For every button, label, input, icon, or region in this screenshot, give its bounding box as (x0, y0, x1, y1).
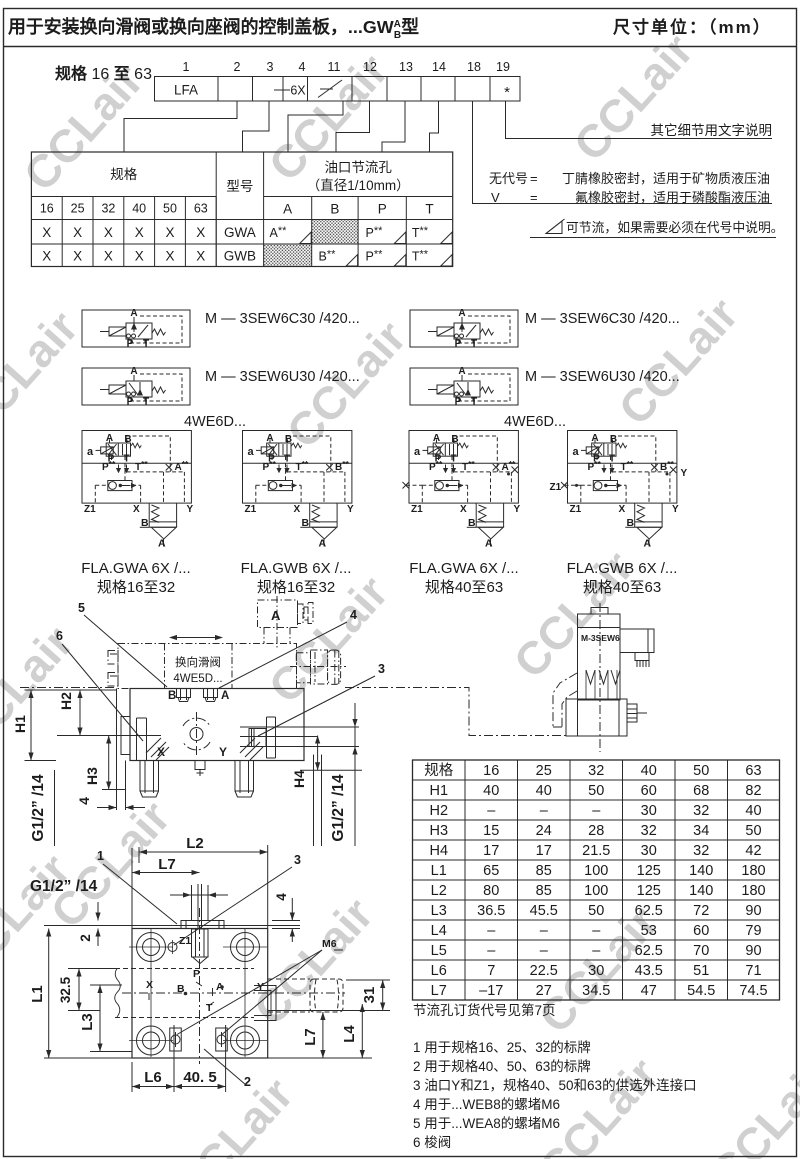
svg-text:规格16至32: 规格16至32 (257, 579, 335, 596)
svg-text:规格: 规格 (110, 167, 137, 182)
svg-text:6 梭阀: 6 梭阀 (413, 1135, 451, 1150)
svg-text:可节流，如果需要必须在代号中说明。: 可节流，如果需要必须在代号中说明。 (566, 220, 784, 235)
svg-text:M-3SEW6: M-3SEW6 (581, 633, 620, 643)
svg-text:A: A (458, 366, 465, 377)
svg-text:7: 7 (487, 963, 495, 979)
svg-text:CCLair: CCLair (0, 616, 83, 763)
svg-text:规格 16 至 63: 规格 16 至 63 (55, 64, 152, 83)
svg-text:FLA.GWB 6X /...: FLA.GWB 6X /... (567, 560, 678, 577)
svg-text:X: X (146, 979, 153, 991)
svg-text:T: T (471, 397, 477, 408)
svg-text:H2: H2 (58, 692, 74, 710)
svg-text:–17: –17 (479, 983, 503, 999)
svg-text:节流孔订货代号见第7页: 节流孔订货代号见第7页 (413, 1002, 556, 1018)
svg-text:X: X (294, 504, 301, 515)
svg-text:25: 25 (536, 763, 552, 779)
svg-text:100: 100 (584, 883, 608, 899)
svg-text:40. 5: 40. 5 (183, 1069, 216, 1086)
svg-text:4WE6D...: 4WE6D... (504, 414, 566, 430)
svg-text:32: 32 (101, 202, 115, 216)
svg-text:L3: L3 (431, 903, 447, 919)
svg-text:a: a (573, 446, 580, 458)
svg-text:G1/2” /14: G1/2” /14 (30, 878, 98, 895)
svg-text:H4: H4 (429, 843, 448, 859)
svg-text:4: 4 (274, 893, 289, 901)
svg-text:X: X (135, 225, 144, 240)
svg-text:A: A (458, 308, 465, 319)
svg-text:A: A (433, 433, 440, 444)
svg-text:71: 71 (745, 963, 761, 979)
svg-text:4WE5D...: 4WE5D... (173, 673, 222, 685)
svg-text:P**: P** (366, 249, 384, 264)
svg-text:140: 140 (689, 863, 713, 879)
svg-text:180: 180 (741, 863, 765, 879)
svg-text:无代号: 无代号 (489, 171, 528, 186)
svg-text:125: 125 (637, 863, 661, 879)
svg-text:A**: A** (270, 225, 288, 240)
svg-text:36.5: 36.5 (477, 903, 505, 919)
svg-text:17: 17 (536, 843, 552, 859)
svg-text:11: 11 (328, 60, 341, 74)
svg-text:G1/2” /14: G1/2” /14 (30, 774, 47, 842)
svg-text:X: X (165, 249, 174, 264)
svg-text:5: 5 (78, 601, 85, 615)
svg-text:B: B (451, 434, 458, 445)
svg-text:T: T (471, 339, 477, 350)
svg-text:H4: H4 (291, 770, 307, 788)
svg-text:–: – (540, 923, 549, 939)
svg-text:A: A (130, 308, 137, 319)
svg-text:72: 72 (693, 903, 709, 919)
svg-text:2: 2 (78, 934, 93, 942)
svg-text:B**: B** (335, 459, 350, 473)
svg-text:H2: H2 (429, 803, 448, 819)
svg-text:180: 180 (741, 883, 765, 899)
svg-text:4WE6D...: 4WE6D... (184, 414, 246, 430)
svg-text:H3: H3 (429, 823, 448, 839)
svg-text:*: * (504, 84, 510, 101)
svg-text:60: 60 (641, 783, 657, 799)
svg-text:28: 28 (588, 823, 604, 839)
svg-text:100: 100 (584, 863, 608, 879)
svg-text:H3: H3 (84, 767, 100, 785)
svg-text:FLA.GWA 6X /...: FLA.GWA 6X /... (409, 560, 518, 577)
svg-text:6: 6 (56, 629, 63, 643)
svg-text:T: T (284, 454, 290, 465)
svg-text:4: 4 (76, 797, 92, 805)
svg-text:Z1: Z1 (179, 935, 191, 947)
svg-text:FLA.GWB 6X /...: FLA.GWB 6X /... (241, 560, 352, 577)
svg-text:19: 19 (496, 60, 510, 74)
svg-text:X: X (196, 249, 205, 264)
svg-text:B: B (468, 517, 476, 529)
svg-text:Y: Y (672, 504, 679, 515)
svg-text:L7: L7 (302, 1028, 319, 1046)
svg-text:16: 16 (483, 763, 499, 779)
svg-text:T**: T** (462, 459, 475, 473)
svg-text:L1: L1 (431, 863, 447, 879)
svg-text:40: 40 (483, 783, 499, 799)
svg-text:A: A (283, 202, 292, 217)
svg-text:32: 32 (693, 803, 709, 819)
svg-text:B: B (302, 517, 310, 529)
svg-text:P: P (435, 454, 442, 465)
svg-text:规格: 规格 (424, 762, 453, 779)
svg-text:A: A (130, 366, 137, 377)
svg-text:60: 60 (693, 923, 709, 939)
svg-text:50: 50 (588, 783, 604, 799)
svg-text:Y: Y (187, 504, 194, 515)
svg-text:尺寸单位：（mm）: 尺寸单位：（mm） (613, 17, 772, 37)
svg-text:17: 17 (483, 843, 499, 859)
svg-text:50: 50 (588, 903, 604, 919)
svg-text:54.5: 54.5 (687, 983, 715, 999)
svg-text:M — 3SEW6C30 /420...: M — 3SEW6C30 /420... (525, 311, 680, 327)
svg-text:G1/2” /14: G1/2” /14 (330, 774, 347, 842)
svg-text:M — 3SEW6U30 /420...: M — 3SEW6U30 /420... (205, 369, 360, 385)
svg-text:P: P (127, 397, 134, 408)
svg-text:A: A (158, 538, 166, 550)
svg-text:50: 50 (693, 763, 709, 779)
svg-text:LFA: LFA (174, 83, 198, 98)
svg-text:A: A (644, 538, 652, 550)
svg-text:3: 3 (267, 60, 274, 74)
svg-text:用于安装换向滑阀或换向座阀的控制盖板，...GWAB型: 用于安装换向滑阀或换向座阀的控制盖板，...GWAB型 (8, 16, 419, 41)
svg-text:L1: L1 (29, 985, 46, 1003)
svg-text:T: T (143, 397, 149, 408)
svg-text:丁腈橡胶密封，适用于矿物质液压油: 丁腈橡胶密封，适用于矿物质液压油 (562, 171, 770, 186)
svg-text:90: 90 (745, 943, 761, 959)
svg-text:CCLair: CCLair (608, 288, 748, 435)
svg-text:GWB: GWB (224, 249, 256, 264)
svg-text:Z1: Z1 (550, 482, 562, 493)
svg-text:79: 79 (745, 923, 761, 939)
svg-text:51: 51 (693, 963, 709, 979)
svg-text:（直径1/10mm）: （直径1/10mm） (307, 178, 410, 193)
svg-text:140: 140 (689, 883, 713, 899)
svg-text:A: A (485, 538, 493, 550)
svg-text:40: 40 (641, 763, 657, 779)
svg-text:1 用于规格16、25、32的标牌: 1 用于规格16、25、32的标牌 (413, 1039, 591, 1055)
svg-text:M6: M6 (322, 938, 337, 950)
svg-text:4: 4 (350, 608, 357, 622)
svg-text:34: 34 (693, 823, 709, 839)
svg-text:A: A (221, 690, 229, 702)
svg-text:40: 40 (745, 803, 761, 819)
svg-text:P: P (455, 339, 462, 350)
svg-text:CCLair: CCLair (0, 301, 88, 448)
svg-text:L4: L4 (431, 923, 447, 939)
svg-text:32: 32 (588, 763, 604, 779)
svg-text:40: 40 (536, 783, 552, 799)
svg-text:30: 30 (641, 803, 657, 819)
svg-text:30: 30 (641, 843, 657, 859)
svg-text:63: 63 (745, 763, 761, 779)
svg-text:a: a (248, 446, 255, 458)
svg-text:22.5: 22.5 (530, 963, 558, 979)
svg-text:3: 3 (294, 853, 301, 867)
svg-text:Z1: Z1 (245, 504, 257, 515)
svg-text:Y: Y (681, 468, 688, 479)
svg-text:X: X (460, 504, 467, 515)
svg-text:L7: L7 (431, 983, 447, 999)
svg-text:H1: H1 (429, 783, 448, 799)
svg-text:15: 15 (483, 823, 499, 839)
svg-text:P: P (378, 202, 387, 217)
svg-text:Z1: Z1 (84, 504, 96, 515)
svg-text:47: 47 (641, 983, 657, 999)
svg-text:70: 70 (693, 943, 709, 959)
svg-text:Z1: Z1 (411, 504, 423, 515)
svg-text:B: B (627, 517, 635, 529)
svg-text:T**: T** (412, 249, 429, 264)
svg-text:Y: Y (514, 504, 521, 515)
svg-text:31: 31 (361, 987, 378, 1004)
svg-text:CCLair: CCLair (700, 1052, 800, 1159)
svg-text:82: 82 (745, 783, 761, 799)
svg-text:规格16至32: 规格16至32 (97, 579, 175, 596)
svg-text:B: B (168, 690, 176, 702)
svg-text:80: 80 (483, 883, 499, 899)
svg-text:=: = (530, 171, 538, 186)
svg-text:27: 27 (536, 983, 552, 999)
svg-text:B: B (330, 202, 339, 217)
svg-text:T**: T** (135, 459, 148, 473)
svg-text:30: 30 (588, 963, 604, 979)
svg-text:T: T (450, 454, 456, 465)
svg-text:T**: T** (412, 225, 429, 240)
svg-text:3: 3 (378, 662, 385, 676)
svg-text:Z1: Z1 (570, 504, 582, 515)
svg-text:a: a (414, 446, 421, 458)
svg-text:A: A (266, 433, 273, 444)
svg-text:B**: B** (319, 249, 337, 264)
svg-text:X: X (133, 504, 140, 515)
svg-text:A: A (271, 608, 281, 623)
svg-text:=: = (530, 190, 538, 205)
svg-text:L6: L6 (144, 1069, 162, 1086)
svg-text:1: 1 (97, 849, 104, 863)
svg-text:90: 90 (745, 903, 761, 919)
svg-text:其它细节用文字说明: 其它细节用文字说明 (651, 122, 773, 138)
svg-text:L2: L2 (431, 883, 447, 899)
svg-text:氟橡胶密封，适用于磷酸酯液压油: 氟橡胶密封，适用于磷酸酯液压油 (575, 190, 770, 205)
svg-text:L6: L6 (431, 963, 447, 979)
svg-text:24: 24 (536, 823, 552, 839)
svg-text:–: – (540, 803, 549, 819)
svg-text:16: 16 (40, 202, 54, 216)
svg-text:50: 50 (745, 823, 761, 839)
svg-text:B: B (124, 434, 131, 445)
svg-text:B: B (141, 517, 149, 529)
svg-text:–: – (592, 803, 601, 819)
svg-text:T: T (609, 454, 615, 465)
svg-text:85: 85 (536, 863, 552, 879)
svg-text:14: 14 (432, 60, 446, 74)
svg-text:68: 68 (693, 783, 709, 799)
svg-text:T: T (123, 454, 129, 465)
svg-text:Y: Y (347, 504, 354, 515)
svg-text:45.5: 45.5 (530, 903, 558, 919)
svg-text:2: 2 (244, 1075, 251, 1089)
svg-text:X: X (104, 249, 113, 264)
svg-text:3 油口Y和Z1，规格40、50和63的供选外连接口: 3 油口Y和Z1，规格40、50和63的供选外连接口 (413, 1077, 697, 1093)
svg-text:L4: L4 (341, 1025, 358, 1043)
svg-text:18: 18 (467, 60, 481, 74)
svg-text:M — 3SEW6C30 /420...: M — 3SEW6C30 /420... (205, 311, 360, 327)
svg-text:1: 1 (183, 60, 190, 74)
svg-text:X: X (165, 225, 174, 240)
svg-text:Y: Y (219, 745, 227, 759)
svg-text:6X: 6X (290, 84, 306, 98)
svg-text:A: A (591, 433, 598, 444)
svg-text:T**: T** (621, 459, 634, 473)
svg-text:FLA.GWA 6X /...: FLA.GWA 6X /... (81, 560, 190, 577)
svg-text:X: X (157, 745, 165, 759)
svg-text:74.5: 74.5 (739, 983, 767, 999)
svg-text:A: A (106, 433, 113, 444)
svg-text:62.5: 62.5 (635, 903, 663, 919)
svg-text:T: T (143, 339, 149, 350)
svg-text:L3: L3 (79, 1013, 96, 1031)
svg-text:34.5: 34.5 (582, 983, 610, 999)
svg-text:P**: P** (366, 225, 384, 240)
svg-text:X: X (104, 225, 113, 240)
svg-text:21.5: 21.5 (582, 843, 610, 859)
svg-text:X: X (42, 225, 51, 240)
svg-text:4 用于...WEB8的螺堵M6: 4 用于...WEB8的螺堵M6 (413, 1097, 560, 1112)
svg-text:4: 4 (299, 60, 306, 74)
svg-text:A**: A** (175, 459, 190, 473)
svg-text:63: 63 (194, 202, 208, 216)
svg-text:5 用于...WEA8的螺堵M6: 5 用于...WEA8的螺堵M6 (413, 1116, 560, 1131)
svg-text:P: P (108, 454, 115, 465)
svg-text:–: – (592, 943, 601, 959)
svg-text:P: P (268, 454, 275, 465)
svg-text:–: – (487, 943, 496, 959)
svg-text:X: X (135, 249, 144, 264)
svg-text:L5: L5 (431, 943, 447, 959)
svg-text:–: – (540, 943, 549, 959)
svg-text:65: 65 (483, 863, 499, 879)
svg-text:a: a (87, 446, 94, 458)
svg-text:油口节流孔: 油口节流孔 (324, 160, 392, 175)
svg-text:GWA: GWA (224, 225, 256, 240)
svg-text:B: B (285, 434, 292, 445)
svg-text:12: 12 (363, 60, 377, 74)
svg-text:规格40至63: 规格40至63 (583, 579, 661, 596)
svg-text:P: P (593, 454, 600, 465)
svg-text:T**: T** (296, 459, 309, 473)
svg-text:L2: L2 (186, 835, 204, 852)
svg-text:T: T (425, 202, 433, 217)
svg-text:换向滑阀: 换向滑阀 (175, 655, 221, 669)
svg-text:25: 25 (71, 202, 85, 216)
svg-text:2: 2 (234, 60, 241, 74)
svg-text:50: 50 (163, 202, 177, 216)
svg-text:85: 85 (536, 883, 552, 899)
svg-text:X: X (73, 249, 82, 264)
svg-text:L7: L7 (158, 856, 176, 873)
svg-text:62.5: 62.5 (635, 943, 663, 959)
svg-text:13: 13 (399, 60, 413, 74)
svg-text:2 用于规格40、50、63的标牌: 2 用于规格40、50、63的标牌 (413, 1058, 591, 1074)
svg-text:–: – (487, 803, 496, 819)
svg-text:V: V (491, 190, 500, 205)
svg-text:H1: H1 (12, 715, 28, 733)
svg-text:P: P (455, 397, 462, 408)
svg-text:A: A (319, 538, 327, 550)
svg-text:32: 32 (641, 823, 657, 839)
svg-text:X: X (42, 249, 51, 264)
svg-text:53: 53 (641, 923, 657, 939)
svg-text:32.5: 32.5 (58, 976, 73, 1003)
svg-text:规格40至63: 规格40至63 (425, 579, 503, 596)
svg-text:X: X (196, 225, 205, 240)
svg-text:–: – (592, 923, 601, 939)
svg-text:B: B (610, 434, 617, 445)
svg-text:X: X (619, 504, 626, 515)
svg-text:32: 32 (693, 843, 709, 859)
svg-text:P: P (127, 339, 134, 350)
svg-text:43.5: 43.5 (635, 963, 663, 979)
svg-text:–: – (487, 923, 496, 939)
svg-text:P: P (193, 968, 200, 980)
svg-text:M — 3SEW6U30 /420...: M — 3SEW6U30 /420... (525, 369, 680, 385)
svg-text:42: 42 (745, 843, 761, 859)
svg-text:型号: 型号 (226, 179, 253, 194)
svg-text:125: 125 (637, 883, 661, 899)
svg-text:40: 40 (132, 202, 146, 216)
svg-text:X: X (73, 225, 82, 240)
